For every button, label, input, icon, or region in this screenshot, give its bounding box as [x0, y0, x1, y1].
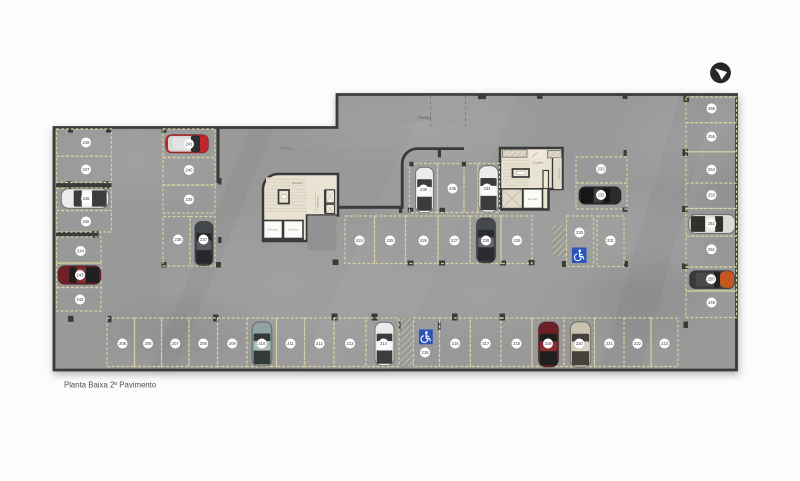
svg-text:209: 209: [229, 341, 237, 346]
svg-text:256: 256: [708, 106, 716, 111]
svg-text:210: 210: [258, 341, 266, 346]
svg-text:239: 239: [186, 197, 194, 202]
svg-text:248: 248: [83, 140, 91, 145]
svg-text:Elevador: Elevador: [288, 229, 298, 232]
svg-text:225: 225: [387, 238, 395, 243]
svg-text:246: 246: [83, 196, 91, 201]
svg-text:Circulação: Circulação: [558, 167, 561, 179]
svg-text:254: 254: [708, 167, 716, 172]
svg-text:242: 242: [77, 297, 85, 302]
svg-text:218: 218: [513, 341, 521, 346]
svg-text:251: 251: [708, 247, 716, 252]
svg-text:216: 216: [452, 341, 460, 346]
svg-text:253: 253: [708, 193, 716, 198]
svg-text:212: 212: [316, 341, 324, 346]
svg-text:238: 238: [175, 237, 183, 242]
svg-text:243: 243: [77, 273, 85, 278]
svg-text:205: 205: [119, 341, 127, 346]
svg-text:230: 230: [576, 230, 584, 235]
svg-text:241: 241: [186, 142, 194, 147]
svg-text:244: 244: [77, 249, 85, 254]
svg-text:231: 231: [607, 238, 615, 243]
svg-text:211: 211: [287, 341, 294, 346]
svg-text:221: 221: [606, 341, 614, 346]
svg-text:235: 235: [449, 186, 457, 191]
svg-text:252: 252: [708, 221, 716, 226]
svg-text:215: 215: [422, 350, 430, 355]
svg-text:206: 206: [145, 341, 153, 346]
svg-text:Planta Baixa 2º Pavimento: Planta Baixa 2º Pavimento: [64, 381, 157, 390]
svg-text:222: 222: [634, 341, 642, 346]
svg-text:233: 233: [598, 167, 606, 172]
svg-text:207: 207: [172, 341, 180, 346]
svg-text:232: 232: [598, 193, 606, 198]
svg-text:224: 224: [356, 238, 364, 243]
svg-text:226: 226: [420, 238, 428, 243]
svg-text:237: 237: [200, 237, 208, 242]
svg-text:Elevador: Elevador: [268, 229, 278, 232]
svg-text:220: 220: [576, 341, 584, 346]
svg-text:227: 227: [451, 238, 459, 243]
svg-text:250: 250: [708, 277, 716, 282]
svg-text:214: 214: [380, 341, 388, 346]
svg-text:247: 247: [83, 167, 91, 172]
svg-text:219: 219: [545, 341, 553, 346]
svg-text:255: 255: [708, 134, 716, 139]
svg-text:Rampa: Rampa: [418, 115, 432, 120]
svg-text:Rampa: Rampa: [279, 145, 293, 150]
svg-text:223: 223: [661, 341, 669, 346]
svg-text:240: 240: [186, 168, 194, 173]
svg-text:Circulação: Circulação: [316, 196, 319, 208]
svg-text:228: 228: [483, 238, 491, 243]
svg-text:245: 245: [83, 219, 91, 224]
svg-text:Escada: Escada: [533, 161, 543, 165]
svg-text:236: 236: [420, 187, 428, 192]
svg-text:Escada: Escada: [292, 181, 302, 185]
svg-text:213: 213: [347, 341, 355, 346]
svg-text:Elevador: Elevador: [528, 198, 538, 201]
svg-text:217: 217: [482, 341, 490, 346]
svg-text:234: 234: [484, 186, 492, 191]
svg-text:249: 249: [708, 300, 716, 305]
svg-text:229: 229: [514, 238, 522, 243]
svg-text:208: 208: [200, 341, 208, 346]
